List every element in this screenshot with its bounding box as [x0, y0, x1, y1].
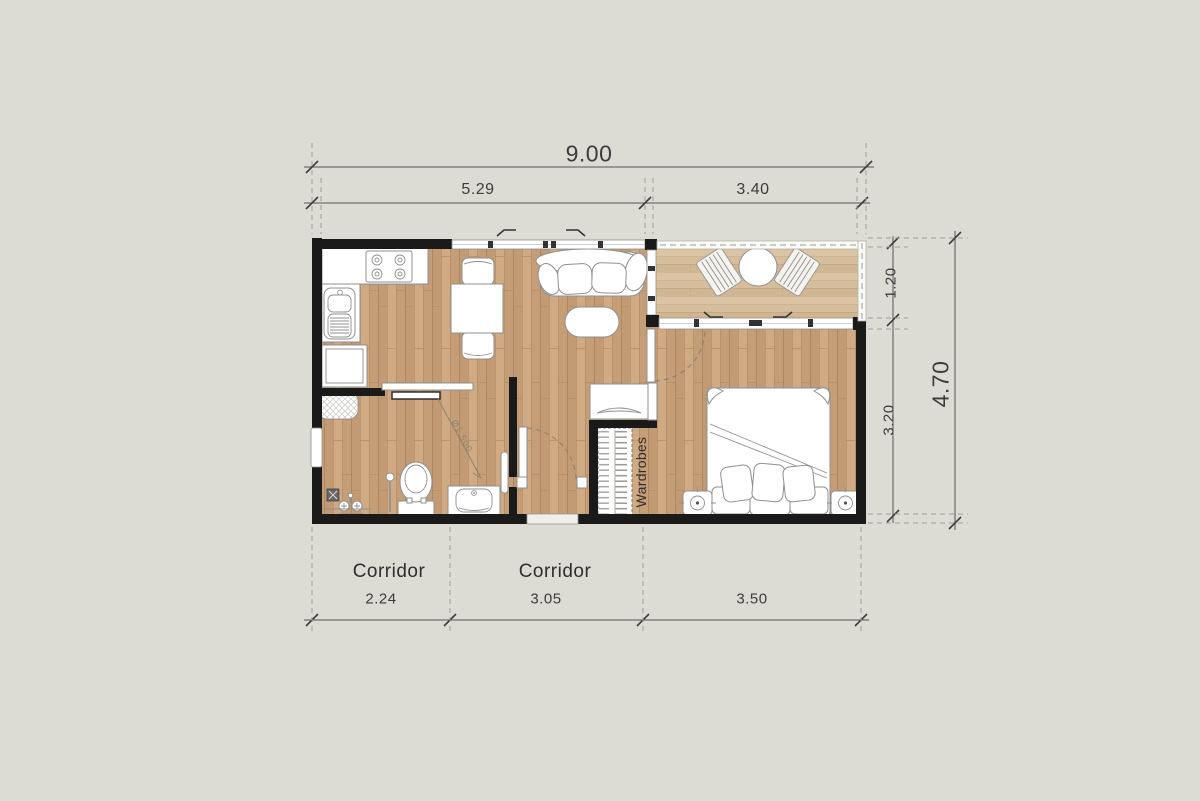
dim-total-width: 9.00 [566, 141, 613, 168]
floor-drain-icon [327, 489, 339, 501]
vanity-sink-icon [448, 486, 500, 516]
floor-plan-canvas: 9.00 5.29 3.40 1.20 3.20 4.70 2.24 3.05 … [0, 0, 1200, 801]
wall-bathroom-north [312, 388, 385, 396]
tv-console [590, 384, 648, 419]
wall-top-solid [312, 239, 452, 249]
corridor-label-mid: Corridor [519, 561, 592, 583]
wall-left [312, 238, 322, 523]
dim-bottom-mid: 3.05 [530, 591, 561, 608]
dim-bottom-right: 3.50 [736, 591, 767, 608]
dim-width-right: 3.40 [736, 181, 769, 199]
corridor-label-left: Corridor [353, 561, 426, 583]
sofa [534, 249, 651, 297]
wall-corridor-east [589, 427, 598, 523]
wall-desk-nook [589, 420, 657, 428]
dining-chair-top [462, 258, 494, 285]
dim-bottom-left: 2.24 [365, 591, 396, 608]
dining-chair-bottom [462, 332, 494, 359]
dim-total-height: 4.70 [928, 361, 955, 408]
towel-bar [501, 452, 508, 493]
wall-right [856, 322, 866, 523]
balcony-table [739, 248, 777, 286]
toilet-icon [398, 462, 434, 516]
coffee-table [565, 307, 619, 337]
floor-plan-drawing [0, 0, 1200, 801]
dim-right-bottom: 3.20 [881, 404, 898, 435]
living-window-band [452, 230, 657, 250]
wall-corridor-west-lower [509, 487, 517, 523]
stove-icon [366, 251, 412, 282]
double-bed [707, 388, 830, 517]
entry-threshold [527, 514, 578, 524]
wardrobes-unit [598, 428, 632, 517]
casement-mark-left [497, 230, 516, 236]
dining-table [451, 284, 503, 333]
casement-mark-right [566, 230, 585, 236]
dim-right-top: 1.20 [883, 267, 900, 298]
wall-corridor-west [509, 377, 517, 477]
dim-width-left: 5.29 [461, 181, 494, 199]
refrigerator-icon [322, 345, 367, 387]
wardrobes-label: Wardrobes [633, 437, 649, 508]
bath-mat [318, 392, 358, 419]
bathroom-window [311, 428, 322, 467]
kitchen-sink-icon [324, 288, 355, 339]
